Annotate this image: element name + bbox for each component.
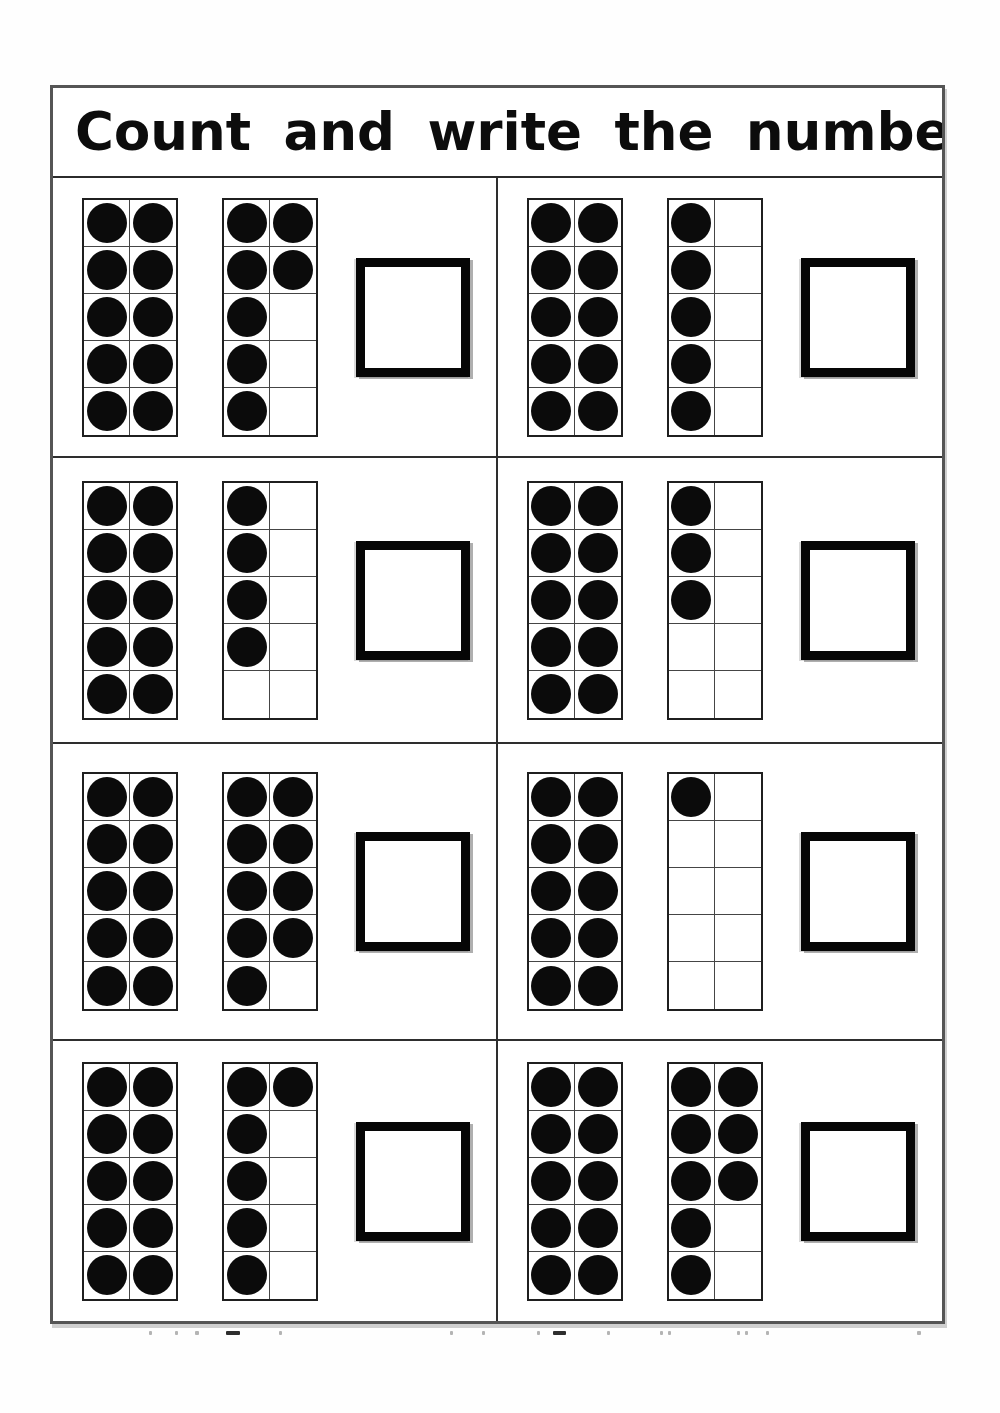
counting-dot: [671, 1255, 711, 1295]
frame-cell-filled: [224, 388, 270, 435]
frame-cell-filled: [130, 1158, 176, 1205]
scan-speck: [553, 1331, 566, 1335]
counting-dot: [531, 391, 571, 431]
scan-speck: [175, 1331, 178, 1335]
frame-cell-filled: [529, 388, 575, 435]
counting-dot: [227, 1114, 267, 1154]
counting-dot: [531, 250, 571, 290]
frame-cell-filled: [575, 341, 621, 388]
frame-cell-filled: [575, 247, 621, 294]
counting-dot: [718, 1161, 758, 1201]
frame-cell-filled: [669, 1111, 715, 1158]
frame-cell-empty: [270, 530, 316, 577]
frame-cell-filled: [669, 774, 715, 821]
counting-dot: [671, 250, 711, 290]
counting-dot: [671, 1161, 711, 1201]
counting-dot: [671, 344, 711, 384]
frame-cell-filled: [224, 1205, 270, 1252]
frame-cell-filled: [529, 1252, 575, 1299]
frame-cell-filled: [529, 530, 575, 577]
counting-dot: [531, 674, 571, 714]
counting-dot: [133, 1208, 173, 1248]
frame-cell-filled: [575, 915, 621, 962]
counting-dot: [531, 1161, 571, 1201]
frame-cell-filled: [529, 294, 575, 341]
counting-dot: [578, 871, 618, 911]
frame-cell-empty: [669, 962, 715, 1009]
counting-dot: [578, 674, 618, 714]
counting-dot: [531, 966, 571, 1006]
counting-dot: [87, 918, 127, 958]
frame-cell-filled: [575, 1064, 621, 1111]
frame-cell-empty: [270, 577, 316, 624]
frame-cell-filled: [224, 200, 270, 247]
frame-cell-filled: [130, 1111, 176, 1158]
problem-cell-8: [498, 1041, 943, 1321]
frame-cell-empty: [715, 341, 761, 388]
counting-dot: [87, 391, 127, 431]
frame-cell-empty: [715, 774, 761, 821]
frame-cell-filled: [224, 915, 270, 962]
ten-frame-left: [527, 1062, 623, 1301]
frame-cell-filled: [224, 247, 270, 294]
frame-cell-empty: [270, 341, 316, 388]
answer-box[interactable]: [801, 1122, 915, 1241]
frame-cell-filled: [575, 388, 621, 435]
frame-cell-empty: [270, 483, 316, 530]
problem-cell-3: [53, 458, 498, 744]
frame-cell-empty: [669, 868, 715, 915]
ten-frame-right: [222, 481, 318, 720]
frame-cell-filled: [575, 774, 621, 821]
counting-dot: [227, 871, 267, 911]
frame-cell-filled: [715, 1064, 761, 1111]
counting-dot: [227, 1161, 267, 1201]
counting-dot: [133, 824, 173, 864]
frame-cell-empty: [715, 915, 761, 962]
frame-cell-filled: [224, 962, 270, 1009]
scan-speck: [537, 1331, 540, 1335]
frame-cell-filled: [224, 1111, 270, 1158]
frame-cell-filled: [669, 200, 715, 247]
counting-dot: [578, 966, 618, 1006]
frame-cell-filled: [130, 1064, 176, 1111]
counting-dot: [133, 1067, 173, 1107]
problem-cell-5: [53, 744, 498, 1041]
frame-cell-filled: [224, 577, 270, 624]
frame-cell-empty: [270, 1205, 316, 1252]
answer-box[interactable]: [356, 541, 470, 660]
scan-speck: [149, 1331, 152, 1335]
counting-dot: [87, 533, 127, 573]
counting-dot: [87, 250, 127, 290]
counting-dot: [578, 918, 618, 958]
frame-cell-filled: [224, 294, 270, 341]
frame-cell-empty: [715, 671, 761, 718]
frame-cell-filled: [224, 624, 270, 671]
counting-dot: [578, 777, 618, 817]
frame-cell-filled: [84, 671, 130, 718]
counting-dot: [531, 580, 571, 620]
frame-cell-empty: [270, 1252, 316, 1299]
frame-cell-filled: [130, 577, 176, 624]
frame-cell-empty: [270, 962, 316, 1009]
frame-cell-filled: [575, 671, 621, 718]
frame-cell-filled: [224, 341, 270, 388]
worksheet-page: Count and write the number.: [0, 0, 1000, 1413]
frame-cell-filled: [669, 1064, 715, 1111]
counting-dot: [671, 391, 711, 431]
counting-dot: [133, 1255, 173, 1295]
frame-cell-filled: [84, 915, 130, 962]
frame-cell-filled: [84, 247, 130, 294]
counting-dot: [133, 966, 173, 1006]
counting-dot: [227, 344, 267, 384]
frame-cell-filled: [84, 294, 130, 341]
counting-dot: [531, 533, 571, 573]
counting-dot: [133, 918, 173, 958]
counting-dot: [671, 533, 711, 573]
scan-speck: [917, 1331, 921, 1335]
frame-cell-filled: [130, 868, 176, 915]
counting-dot: [227, 627, 267, 667]
frame-cell-filled: [575, 294, 621, 341]
counting-dot: [227, 391, 267, 431]
counting-dot: [531, 344, 571, 384]
ten-frame-left: [527, 481, 623, 720]
ten-frame-left: [527, 772, 623, 1011]
counting-dot: [531, 777, 571, 817]
frame-cell-filled: [575, 1252, 621, 1299]
counting-dot: [133, 250, 173, 290]
frame-cell-filled: [84, 774, 130, 821]
ten-frame-left: [527, 198, 623, 437]
frame-cell-empty: [715, 962, 761, 1009]
frame-cell-filled: [669, 1205, 715, 1252]
frame-cell-filled: [529, 624, 575, 671]
counting-dot: [578, 1255, 618, 1295]
counting-dot: [578, 1067, 618, 1107]
scan-speck: [482, 1331, 485, 1335]
worksheet-table: Count and write the number.: [50, 85, 945, 1324]
counting-dot: [227, 580, 267, 620]
counting-dot: [133, 871, 173, 911]
frame-cell-filled: [669, 247, 715, 294]
frame-cell-filled: [575, 200, 621, 247]
frame-cell-empty: [270, 624, 316, 671]
counting-dot: [133, 533, 173, 573]
ten-frame-right: [667, 198, 763, 437]
problem-cell-6: [498, 744, 943, 1041]
counting-dot: [87, 1255, 127, 1295]
frame-cell-empty: [270, 294, 316, 341]
counting-dot: [578, 1114, 618, 1154]
worksheet-header: Count and write the number.: [53, 88, 942, 178]
counting-dot: [671, 1114, 711, 1154]
counting-dot: [87, 297, 127, 337]
ten-frame-left: [82, 198, 178, 437]
counting-dot: [578, 580, 618, 620]
counting-dot: [531, 1067, 571, 1107]
answer-box[interactable]: [801, 541, 915, 660]
counting-dot: [273, 203, 313, 243]
frame-cell-filled: [130, 294, 176, 341]
frame-cell-empty: [715, 247, 761, 294]
counting-dot: [87, 966, 127, 1006]
counting-dot: [227, 297, 267, 337]
frame-cell-filled: [575, 821, 621, 868]
counting-dot: [227, 824, 267, 864]
frame-cell-filled: [669, 1252, 715, 1299]
scan-speck: [660, 1331, 663, 1335]
counting-dot: [273, 1067, 313, 1107]
frame-cell-filled: [270, 247, 316, 294]
frame-cell-filled: [84, 1158, 130, 1205]
frame-cell-filled: [529, 915, 575, 962]
answer-box[interactable]: [356, 258, 470, 377]
counting-dot: [531, 627, 571, 667]
scan-speck: [226, 1331, 240, 1335]
frame-cell-filled: [575, 577, 621, 624]
counting-dot: [227, 203, 267, 243]
counting-dot: [227, 1067, 267, 1107]
frame-cell-empty: [715, 388, 761, 435]
counting-dot: [578, 533, 618, 573]
frame-cell-filled: [270, 868, 316, 915]
frame-cell-empty: [715, 821, 761, 868]
frame-cell-filled: [529, 1111, 575, 1158]
counting-dot: [531, 918, 571, 958]
frame-cell-filled: [130, 1205, 176, 1252]
counting-dot: [531, 1114, 571, 1154]
frame-cell-filled: [575, 1158, 621, 1205]
counting-dot: [87, 203, 127, 243]
frame-cell-filled: [575, 483, 621, 530]
frame-cell-filled: [84, 388, 130, 435]
answer-box[interactable]: [801, 832, 915, 951]
frame-cell-empty: [669, 624, 715, 671]
counting-dot: [718, 1114, 758, 1154]
frame-cell-filled: [84, 1111, 130, 1158]
frame-cell-filled: [270, 821, 316, 868]
frame-cell-filled: [529, 671, 575, 718]
counting-dot: [133, 674, 173, 714]
counting-dot: [133, 627, 173, 667]
frame-cell-empty: [224, 671, 270, 718]
frame-cell-filled: [224, 868, 270, 915]
counting-dot: [578, 297, 618, 337]
counting-dot: [227, 966, 267, 1006]
problems-grid: [53, 178, 942, 1321]
frame-cell-filled: [130, 1252, 176, 1299]
frame-cell-empty: [715, 483, 761, 530]
frame-cell-empty: [715, 868, 761, 915]
counting-dot: [671, 777, 711, 817]
frame-cell-empty: [715, 200, 761, 247]
frame-cell-empty: [669, 915, 715, 962]
frame-cell-filled: [669, 341, 715, 388]
scan-speck: [766, 1331, 769, 1335]
footer-scan-artifacts: [0, 1329, 1000, 1339]
frame-cell-filled: [84, 341, 130, 388]
scan-speck: [737, 1331, 740, 1335]
frame-cell-filled: [529, 868, 575, 915]
frame-cell-filled: [270, 1064, 316, 1111]
counting-dot: [671, 1067, 711, 1107]
frame-cell-filled: [130, 821, 176, 868]
counting-dot: [227, 918, 267, 958]
answer-box[interactable]: [356, 1122, 470, 1241]
counting-dot: [227, 1255, 267, 1295]
counting-dot: [578, 344, 618, 384]
counting-dot: [227, 1208, 267, 1248]
counting-dot: [531, 824, 571, 864]
counting-dot: [87, 824, 127, 864]
frame-cell-filled: [529, 200, 575, 247]
counting-dot: [273, 250, 313, 290]
frame-cell-filled: [529, 962, 575, 1009]
counting-dot: [133, 344, 173, 384]
frame-cell-filled: [224, 821, 270, 868]
frame-cell-filled: [224, 483, 270, 530]
frame-cell-filled: [224, 1064, 270, 1111]
counting-dot: [87, 777, 127, 817]
frame-cell-filled: [669, 1158, 715, 1205]
counting-dot: [578, 250, 618, 290]
scan-speck: [450, 1331, 453, 1335]
ten-frame-right: [222, 198, 318, 437]
counting-dot: [133, 1114, 173, 1154]
counting-dot: [87, 1114, 127, 1154]
counting-dot: [87, 1067, 127, 1107]
frame-cell-empty: [715, 530, 761, 577]
counting-dot: [671, 297, 711, 337]
frame-cell-filled: [130, 962, 176, 1009]
frame-cell-filled: [669, 294, 715, 341]
counting-dot: [273, 824, 313, 864]
frame-cell-filled: [130, 915, 176, 962]
counting-dot: [273, 777, 313, 817]
counting-dot: [531, 297, 571, 337]
frame-cell-empty: [715, 1252, 761, 1299]
frame-cell-filled: [130, 774, 176, 821]
frame-cell-filled: [575, 868, 621, 915]
problem-cell-4: [498, 458, 943, 744]
counting-dot: [531, 871, 571, 911]
frame-cell-filled: [84, 483, 130, 530]
frame-cell-filled: [529, 247, 575, 294]
answer-box[interactable]: [356, 832, 470, 951]
counting-dot: [531, 486, 571, 526]
frame-cell-filled: [130, 341, 176, 388]
frame-cell-filled: [84, 624, 130, 671]
frame-cell-empty: [669, 671, 715, 718]
frame-cell-empty: [270, 671, 316, 718]
frame-cell-filled: [130, 671, 176, 718]
scan-speck: [279, 1331, 282, 1335]
frame-cell-filled: [130, 388, 176, 435]
counting-dot: [531, 203, 571, 243]
counting-dot: [87, 580, 127, 620]
frame-cell-filled: [84, 1252, 130, 1299]
counting-dot: [578, 203, 618, 243]
frame-cell-filled: [575, 1111, 621, 1158]
frame-cell-filled: [84, 1064, 130, 1111]
frame-cell-filled: [669, 483, 715, 530]
frame-cell-filled: [130, 483, 176, 530]
frame-cell-filled: [84, 962, 130, 1009]
frame-cell-filled: [130, 624, 176, 671]
ten-frame-right: [667, 1062, 763, 1301]
frame-cell-empty: [715, 624, 761, 671]
counting-dot: [671, 203, 711, 243]
answer-box[interactable]: [801, 258, 915, 377]
frame-cell-filled: [669, 577, 715, 624]
counting-dot: [133, 203, 173, 243]
frame-cell-filled: [575, 962, 621, 1009]
frame-cell-filled: [529, 341, 575, 388]
counting-dot: [133, 580, 173, 620]
frame-cell-filled: [529, 483, 575, 530]
ten-frame-right: [667, 481, 763, 720]
counting-dot: [133, 391, 173, 431]
frame-cell-filled: [84, 1205, 130, 1252]
frame-cell-filled: [84, 821, 130, 868]
frame-cell-filled: [669, 530, 715, 577]
scan-speck: [607, 1331, 610, 1335]
ten-frame-right: [222, 1062, 318, 1301]
frame-cell-filled: [224, 1158, 270, 1205]
frame-cell-filled: [575, 1205, 621, 1252]
frame-cell-filled: [529, 1158, 575, 1205]
frame-cell-empty: [715, 1205, 761, 1252]
frame-cell-filled: [270, 200, 316, 247]
counting-dot: [273, 918, 313, 958]
frame-cell-empty: [270, 388, 316, 435]
frame-cell-filled: [84, 868, 130, 915]
frame-cell-filled: [715, 1158, 761, 1205]
counting-dot: [227, 250, 267, 290]
frame-cell-filled: [84, 577, 130, 624]
frame-cell-filled: [575, 530, 621, 577]
counting-dot: [578, 1208, 618, 1248]
counting-dot: [227, 777, 267, 817]
counting-dot: [133, 777, 173, 817]
counting-dot: [87, 871, 127, 911]
counting-dot: [133, 486, 173, 526]
frame-cell-filled: [529, 1064, 575, 1111]
frame-cell-filled: [715, 1111, 761, 1158]
frame-cell-filled: [270, 915, 316, 962]
counting-dot: [87, 674, 127, 714]
counting-dot: [578, 627, 618, 667]
frame-cell-filled: [84, 200, 130, 247]
counting-dot: [133, 1161, 173, 1201]
frame-cell-filled: [529, 1205, 575, 1252]
frame-cell-filled: [224, 1252, 270, 1299]
scan-speck: [668, 1331, 671, 1335]
frame-cell-filled: [575, 624, 621, 671]
frame-cell-filled: [529, 577, 575, 624]
frame-cell-filled: [270, 774, 316, 821]
scan-speck: [745, 1331, 748, 1335]
frame-cell-empty: [715, 294, 761, 341]
frame-cell-empty: [669, 821, 715, 868]
counting-dot: [87, 1161, 127, 1201]
frame-cell-filled: [130, 200, 176, 247]
counting-dot: [227, 533, 267, 573]
counting-dot: [87, 344, 127, 384]
